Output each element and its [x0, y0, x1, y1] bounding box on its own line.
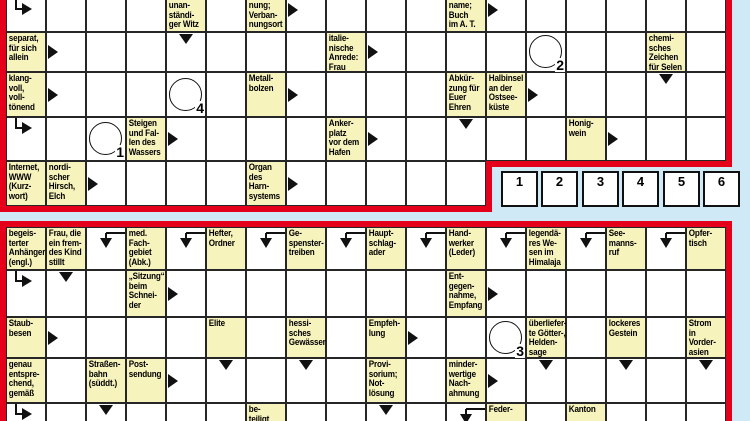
- clue-cell: chemi- sches Zeichen für Selen: [646, 32, 686, 72]
- answer-cell[interactable]: [366, 117, 406, 161]
- answer-cell[interactable]: [166, 161, 206, 206]
- clue-text: Honig- wein: [567, 118, 607, 139]
- answer-cell[interactable]: 2: [526, 32, 566, 72]
- clue-cell: Feder-: [486, 403, 526, 421]
- solution-box-6[interactable]: 6: [703, 171, 740, 207]
- solution-box-number: 4: [624, 173, 657, 189]
- clue-cell: Abkür- zung für Euer Ehren: [446, 72, 486, 117]
- arrow-right-icon: [288, 88, 298, 102]
- answer-cell[interactable]: [206, 161, 246, 206]
- answer-cell[interactable]: [286, 32, 326, 72]
- puzzle-bottom-grid: begeis- terter Anhänger (engl.)Frau, die…: [6, 227, 726, 421]
- answer-cell[interactable]: [246, 227, 286, 270]
- arrow-down-icon: [659, 74, 673, 84]
- answer-cell[interactable]: [646, 358, 686, 403]
- clue-cell: separat, für sich allein: [6, 32, 46, 72]
- clue-cell: See- manns- ruf: [606, 227, 646, 270]
- answer-cell[interactable]: [606, 32, 646, 72]
- clue-text: Ent- gegen- nahme, Empfang: [447, 271, 487, 311]
- answer-cell[interactable]: [446, 117, 486, 161]
- clue-cell: begeis- terter Anhänger (engl.): [6, 227, 46, 270]
- answer-cell[interactable]: [406, 403, 446, 421]
- answer-cell[interactable]: [86, 403, 126, 421]
- clue-cell: hessi- sches Gewässer: [286, 317, 326, 358]
- clue-text: be- teiligt: [247, 404, 287, 421]
- arrow-right-icon: [488, 287, 498, 301]
- answer-cell[interactable]: [486, 117, 526, 161]
- answer-cell[interactable]: [366, 72, 406, 117]
- solution-box-number: 1: [503, 173, 536, 189]
- clue-cell: Straßen- bahn (süddt.): [86, 358, 126, 403]
- arrow-right-icon: [88, 177, 98, 191]
- answer-cell[interactable]: [326, 0, 366, 32]
- answer-cell[interactable]: [406, 117, 446, 161]
- clue-cell: Strom in Vorder- asien: [686, 317, 726, 358]
- clue-text: Haupt- schlag- ader: [367, 228, 407, 259]
- answer-cell[interactable]: [86, 32, 126, 72]
- answer-cell[interactable]: [6, 403, 46, 421]
- clue-text: Provi- sorium; Not- lösung: [367, 359, 407, 399]
- answer-cell[interactable]: [646, 270, 686, 317]
- answer-cell[interactable]: [406, 358, 446, 403]
- elbow-right-icon: [11, 404, 33, 421]
- clue-text: nung; Verban- nungsort: [247, 0, 287, 31]
- answer-cell[interactable]: [166, 32, 206, 72]
- clue-cell: Empfeh- lung: [366, 317, 406, 358]
- answer-cell[interactable]: [566, 317, 606, 358]
- arrow-right-icon: [488, 3, 498, 17]
- answer-cell[interactable]: [646, 227, 686, 270]
- clue-text: Straßen- bahn (süddt.): [87, 359, 127, 390]
- clue-text: Internet, WWW (Kurz- wort): [7, 162, 47, 202]
- elbow-right-icon: [11, 0, 33, 18]
- clue-cell: Honig- wein: [566, 117, 606, 161]
- solution-box-1[interactable]: 1: [501, 171, 538, 207]
- answer-cell[interactable]: [46, 0, 86, 32]
- arrow-right-icon: [408, 331, 418, 345]
- clue-cell: Hand- werker (Leder): [446, 227, 486, 270]
- answer-cell[interactable]: [606, 72, 646, 117]
- clue-cell: Provi- sorium; Not- lösung: [366, 358, 406, 403]
- clue-cell: Haupt- schlag- ader: [366, 227, 406, 270]
- answer-cell[interactable]: [326, 227, 366, 270]
- clue-cell: italie- nische Anrede: Frau: [326, 32, 366, 72]
- answer-cell[interactable]: [166, 270, 206, 317]
- arrow-down-icon: [539, 360, 553, 370]
- answer-cell[interactable]: [206, 32, 246, 72]
- answer-cell[interactable]: [526, 403, 566, 421]
- answer-cell[interactable]: [246, 358, 286, 403]
- elbow-down-icon: [97, 229, 125, 250]
- answer-cell[interactable]: [206, 0, 246, 32]
- clue-text: name; Buch im A. T.: [447, 0, 487, 31]
- answer-cell[interactable]: [526, 358, 566, 403]
- clue-text: legendä- res We- sen im Himalaja: [527, 228, 567, 268]
- clue-text: Elite: [207, 318, 247, 330]
- clue-cell: überliefer- te Götter-, Helden- sage: [526, 317, 566, 358]
- solution-box-2[interactable]: 2: [541, 171, 578, 207]
- answer-cell[interactable]: [6, 0, 46, 32]
- answer-cell[interactable]: [46, 403, 86, 421]
- clue-text: Staub- besen: [7, 318, 47, 339]
- answer-cell[interactable]: [406, 161, 446, 206]
- answer-cell[interactable]: [246, 32, 286, 72]
- solution-box-3[interactable]: 3: [582, 171, 619, 207]
- clue-text: Hefter, Ordner: [207, 228, 247, 249]
- answer-cell[interactable]: [526, 117, 566, 161]
- clue-text: unan- ständi- ger Witz: [167, 0, 207, 31]
- puzzle-top-border-bottom-left: [0, 206, 492, 212]
- answer-cell[interactable]: [326, 161, 366, 206]
- clue-cell: unan- ständi- ger Witz: [166, 0, 206, 32]
- clue-cell: Frau, die ein frem- des Kind stillt: [46, 227, 86, 270]
- arrow-right-icon: [368, 45, 378, 59]
- elbow-down-icon: [497, 229, 525, 250]
- answer-cell[interactable]: [46, 72, 86, 117]
- solution-circle-number: 4: [195, 101, 205, 115]
- answer-cell[interactable]: [126, 72, 166, 117]
- arrow-right-icon: [288, 177, 298, 191]
- answer-cell[interactable]: [486, 32, 526, 72]
- solution-circle-number: 3: [515, 344, 525, 358]
- answer-cell[interactable]: [206, 117, 246, 161]
- clue-text: Post- sendung: [127, 359, 167, 380]
- answer-cell[interactable]: [646, 117, 686, 161]
- answer-cell[interactable]: [206, 270, 246, 317]
- arrow-right-icon: [368, 132, 378, 146]
- arrow-right-icon: [168, 132, 178, 146]
- answer-cell[interactable]: [326, 403, 366, 421]
- clue-cell: Steigen und Fal- len des Wassers: [126, 117, 166, 161]
- clue-cell: „Sitzung“ beim Schnei- der: [126, 270, 166, 317]
- solution-box-4[interactable]: 4: [622, 171, 659, 207]
- answer-cell[interactable]: [246, 270, 286, 317]
- answer-cell[interactable]: 1: [86, 117, 126, 161]
- elbow-down-icon: [657, 229, 685, 250]
- answer-cell[interactable]: [406, 32, 446, 72]
- answer-cell[interactable]: [46, 358, 86, 403]
- clue-cell: Hefter, Ordner: [206, 227, 246, 270]
- clue-text: begeis- terter Anhänger (engl.): [7, 228, 47, 268]
- clue-text: Organ des Harn- systems: [247, 162, 287, 202]
- clue-cell: Anker- platz vor dem Hafen: [326, 117, 366, 161]
- answer-cell[interactable]: [286, 0, 326, 32]
- clue-text: genau entspre- chend, gemäß: [7, 359, 47, 399]
- answer-cell[interactable]: [166, 403, 206, 421]
- answer-cell[interactable]: [326, 72, 366, 117]
- arrow-right-icon: [48, 331, 58, 345]
- answer-cell[interactable]: [366, 32, 406, 72]
- answer-cell[interactable]: [686, 358, 726, 403]
- solution-box-number: 3: [584, 173, 617, 189]
- answer-cell[interactable]: [406, 270, 446, 317]
- solution-circle-icon: 2: [529, 35, 562, 68]
- answer-cell[interactable]: [446, 317, 486, 358]
- answer-cell[interactable]: [86, 72, 126, 117]
- answer-cell[interactable]: [126, 317, 166, 358]
- clue-cell: Internet, WWW (Kurz- wort): [6, 161, 46, 206]
- answer-cell[interactable]: [86, 270, 126, 317]
- answer-cell[interactable]: [686, 32, 726, 72]
- answer-cell[interactable]: [286, 72, 326, 117]
- answer-cell[interactable]: [366, 161, 406, 206]
- answer-cell[interactable]: [486, 227, 526, 270]
- answer-cell[interactable]: [166, 317, 206, 358]
- clue-cell: be- teiligt: [246, 403, 286, 421]
- clue-text: Empfeh- lung: [367, 318, 407, 339]
- elbow-down-icon: [337, 229, 365, 250]
- clue-text: Anker- platz vor dem Hafen: [327, 118, 367, 158]
- answer-cell[interactable]: [206, 72, 246, 117]
- answer-cell[interactable]: [686, 403, 726, 421]
- clue-cell: Kanton: [566, 403, 606, 421]
- elbow-down-icon: [177, 229, 205, 250]
- clue-cell: klang- voll, voll- tönend: [6, 72, 46, 117]
- arrow-down-icon: [699, 360, 713, 370]
- answer-cell[interactable]: [286, 117, 326, 161]
- arrow-right-icon: [488, 374, 498, 388]
- arrow-down-icon: [619, 360, 633, 370]
- elbow-right-icon: [11, 118, 33, 137]
- elbow-down-icon: [417, 229, 445, 250]
- answer-cell[interactable]: [646, 403, 686, 421]
- arrow-down-icon: [59, 272, 73, 282]
- answer-cell[interactable]: [6, 270, 46, 317]
- elbow-down-icon: [257, 229, 285, 250]
- answer-cell[interactable]: [646, 317, 686, 358]
- answer-cell[interactable]: [686, 117, 726, 161]
- answer-cell[interactable]: [566, 72, 606, 117]
- answer-cell[interactable]: [686, 270, 726, 317]
- solution-circle-number: 2: [555, 58, 565, 72]
- arrow-down-icon: [219, 360, 233, 370]
- clue-cell: Metall- bolzen: [246, 72, 286, 117]
- answer-cell[interactable]: [366, 270, 406, 317]
- clue-text: minder- wertige Nach- ahmung: [447, 359, 487, 399]
- clue-text: Frau, die ein frem- des Kind stillt: [47, 228, 87, 268]
- answer-cell[interactable]: [646, 72, 686, 117]
- answer-cell[interactable]: [286, 358, 326, 403]
- elbow-down-icon: [457, 405, 485, 421]
- elbow-right-icon: [11, 271, 33, 290]
- answer-cell[interactable]: [646, 0, 686, 32]
- arrow-right-icon: [288, 3, 298, 17]
- answer-cell[interactable]: [86, 161, 126, 206]
- answer-cell[interactable]: [406, 0, 446, 32]
- clue-cell: nordi- scher Hirsch, Elch: [46, 161, 86, 206]
- answer-cell[interactable]: [526, 0, 566, 32]
- answer-cell[interactable]: [566, 358, 606, 403]
- solution-circle-number: 1: [115, 145, 125, 159]
- answer-cell[interactable]: [286, 403, 326, 421]
- clue-text: Halbinsel an der Ostsee- küste: [487, 73, 527, 113]
- answer-cell[interactable]: [46, 317, 86, 358]
- answer-cell[interactable]: [606, 117, 646, 161]
- arrow-down-icon: [99, 405, 113, 415]
- answer-cell[interactable]: [326, 317, 366, 358]
- clue-cell: Staub- besen: [6, 317, 46, 358]
- clue-cell: Elite: [206, 317, 246, 358]
- answer-cell[interactable]: [126, 0, 166, 32]
- answer-cell[interactable]: [86, 227, 126, 270]
- answer-cell[interactable]: [606, 0, 646, 32]
- arrow-right-icon: [528, 88, 538, 102]
- answer-cell[interactable]: [406, 227, 446, 270]
- arrow-right-icon: [168, 287, 178, 301]
- answer-cell[interactable]: [566, 32, 606, 72]
- clue-cell: nung; Verban- nungsort: [246, 0, 286, 32]
- answer-cell[interactable]: [486, 270, 526, 317]
- clue-cell: Ge- spenster- treiben: [286, 227, 326, 270]
- answer-cell[interactable]: [46, 270, 86, 317]
- answer-cell[interactable]: [126, 403, 166, 421]
- answer-cell[interactable]: [526, 72, 566, 117]
- clue-cell: name; Buch im A. T.: [446, 0, 486, 32]
- answer-cell[interactable]: [486, 0, 526, 32]
- answer-cell[interactable]: [446, 161, 486, 206]
- answer-cell[interactable]: [206, 403, 246, 421]
- answer-cell[interactable]: [606, 358, 646, 403]
- clue-text: überliefer- te Götter-, Helden- sage: [527, 318, 567, 358]
- arrow-right-icon: [608, 132, 618, 146]
- answer-cell[interactable]: [606, 270, 646, 317]
- clue-text: separat, für sich allein: [7, 33, 47, 64]
- puzzle-top-border-right: [726, 0, 732, 167]
- clue-text: Feder-: [487, 404, 527, 416]
- clue-cell: genau entspre- chend, gemäß: [6, 358, 46, 403]
- arrow-right-icon: [48, 88, 58, 102]
- answer-cell[interactable]: [206, 358, 246, 403]
- clue-text: Abkür- zung für Euer Ehren: [447, 73, 487, 113]
- clue-text: Kanton: [567, 404, 607, 416]
- arrow-down-icon: [379, 405, 393, 415]
- answer-cell[interactable]: [366, 0, 406, 32]
- arrow-right-icon: [168, 374, 178, 388]
- clue-text: „Sitzung“ beim Schnei- der: [127, 271, 167, 311]
- answer-cell[interactable]: [126, 161, 166, 206]
- clue-text: Ge- spenster- treiben: [287, 228, 327, 259]
- solution-box-5[interactable]: 5: [663, 171, 700, 207]
- clue-cell: Ent- gegen- nahme, Empfang: [446, 270, 486, 317]
- solution-circle-icon: 1: [89, 122, 122, 155]
- answer-cell[interactable]: [246, 317, 286, 358]
- clue-text: chemi- sches Zeichen für Selen: [647, 33, 687, 73]
- answer-cell[interactable]: 4: [166, 72, 206, 117]
- answer-cell[interactable]: [86, 317, 126, 358]
- answer-cell[interactable]: [126, 32, 166, 72]
- answer-cell[interactable]: [406, 72, 446, 117]
- answer-cell[interactable]: [566, 270, 606, 317]
- arrow-down-icon: [459, 119, 473, 129]
- answer-cell[interactable]: [366, 403, 406, 421]
- answer-cell[interactable]: [446, 403, 486, 421]
- clue-text: Hand- werker (Leder): [447, 228, 487, 259]
- answer-cell[interactable]: [406, 317, 446, 358]
- clue-cell: med. Fach- gebiet (Abk.): [126, 227, 166, 270]
- answer-cell[interactable]: [446, 32, 486, 72]
- clue-text: Opfer- tisch: [687, 228, 726, 249]
- clue-text: lockeres Gestein: [607, 318, 647, 339]
- answer-cell[interactable]: [566, 0, 606, 32]
- answer-cell[interactable]: [326, 270, 366, 317]
- clue-cell: lockeres Gestein: [606, 317, 646, 358]
- answer-cell[interactable]: [286, 161, 326, 206]
- answer-cell[interactable]: [166, 358, 206, 403]
- clue-text: Metall- bolzen: [247, 73, 287, 94]
- elbow-down-icon: [577, 229, 605, 250]
- puzzle-bottom-border-right: [726, 227, 732, 421]
- answer-cell[interactable]: [526, 270, 566, 317]
- answer-cell[interactable]: [46, 32, 86, 72]
- clue-text: klang- voll, voll- tönend: [7, 73, 47, 113]
- answer-cell[interactable]: [606, 403, 646, 421]
- arrow-down-icon: [299, 360, 313, 370]
- clue-cell: Post- sendung: [126, 358, 166, 403]
- clue-cell: Organ des Harn- systems: [246, 161, 286, 206]
- arrow-down-icon: [179, 34, 193, 44]
- clue-text: med. Fach- gebiet (Abk.): [127, 228, 167, 268]
- answer-cell[interactable]: [326, 358, 366, 403]
- answer-cell[interactable]: [166, 227, 206, 270]
- solution-box-number: 5: [665, 173, 698, 189]
- answer-cell[interactable]: [246, 117, 286, 161]
- answer-cell[interactable]: [686, 72, 726, 117]
- clue-cell: minder- wertige Nach- ahmung: [446, 358, 486, 403]
- solution-circle-icon: 4: [169, 78, 202, 111]
- clue-cell: Halbinsel an der Ostsee- küste: [486, 72, 526, 117]
- clue-text: hessi- sches Gewässer: [287, 318, 327, 349]
- answer-cell[interactable]: [86, 0, 126, 32]
- answer-cell[interactable]: 3: [486, 317, 526, 358]
- clue-text: italie- nische Anrede: Frau: [327, 33, 367, 73]
- clue-text: See- manns- ruf: [607, 228, 647, 259]
- answer-cell[interactable]: [286, 270, 326, 317]
- clue-text: Strom in Vorder- asien: [687, 318, 726, 358]
- clue-cell: Opfer- tisch: [686, 227, 726, 270]
- solution-box-number: 6: [705, 173, 738, 189]
- answer-cell[interactable]: [46, 117, 86, 161]
- answer-cell[interactable]: [486, 358, 526, 403]
- clue-cell: legendä- res We- sen im Himalaja: [526, 227, 566, 270]
- clue-text: Steigen und Fal- len des Wassers: [127, 118, 167, 158]
- clue-text: nordi- scher Hirsch, Elch: [47, 162, 87, 202]
- answer-cell[interactable]: [166, 117, 206, 161]
- arrow-right-icon: [48, 45, 58, 59]
- answer-cell[interactable]: [566, 227, 606, 270]
- crossword-page: unan- ständi- ger Witznung; Verban- nung…: [0, 0, 750, 421]
- solution-box-number: 2: [543, 173, 576, 189]
- answer-cell[interactable]: [6, 117, 46, 161]
- solution-circle-icon: 3: [489, 321, 522, 354]
- answer-cell[interactable]: [686, 0, 726, 32]
